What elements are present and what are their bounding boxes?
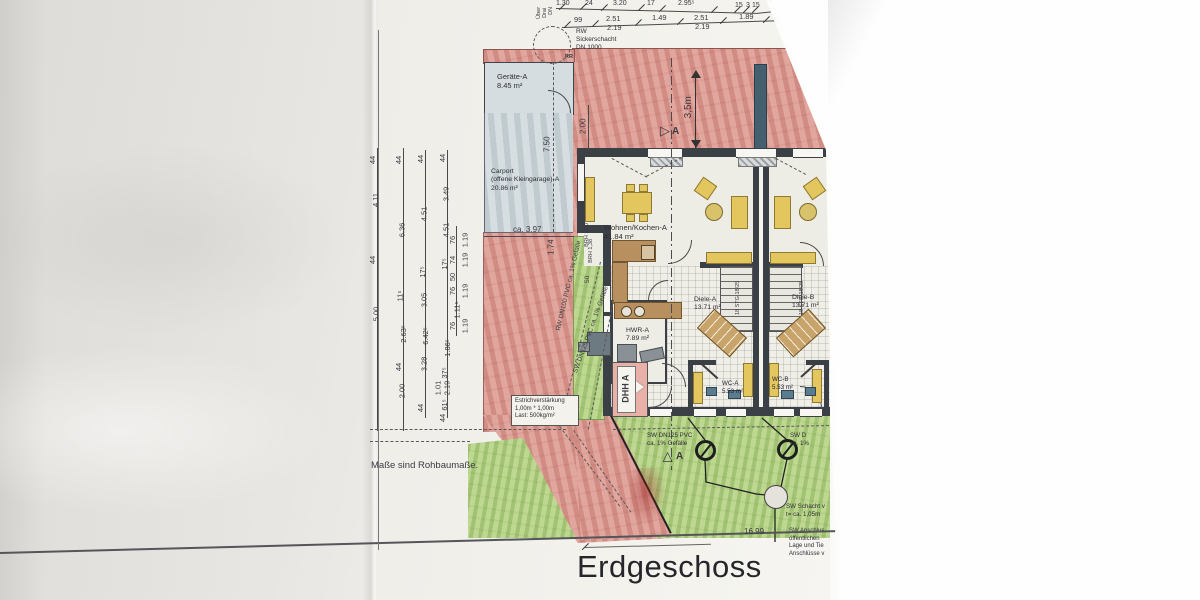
dim-ca397-line [484,236,574,237]
rohbau-note: Maße sind Rohbaumaße. [371,461,478,471]
dimension-chain-line [425,150,426,418]
dining-chair-4 [639,214,648,222]
page-title: Erdgeschoss [577,549,762,585]
dining-chair-3 [626,214,635,222]
dimension-label: 4.51 [420,207,428,222]
sw-lawn-label: SW DN125 PVC ca. 1% Gefälle [647,432,692,448]
hwr-label: HWR-A7.89 m² [626,327,649,344]
dimension-label: 61⁵ [441,399,449,410]
grenz-length-label: 16.99 [744,528,764,536]
dimension-label: 44 [395,363,403,371]
dimension-label: 2.51 [606,15,621,23]
dimension-label: 76 [449,236,457,244]
lintel-b [738,157,777,167]
dimension-label: 17⁵ [419,266,427,277]
washer [617,344,637,362]
geraete-label: Geräte-A8.45 m² [497,72,527,91]
dimension-label: 44 [395,156,403,164]
paper-left-area [0,0,380,600]
plan-frame-left [378,30,379,550]
toilet-b [805,387,816,396]
plant-table-b [799,203,817,221]
dimension-label: 1.19 [461,253,469,268]
plant-table-a [705,203,723,221]
section-line-a [671,58,672,158]
dim-35-arrow-down [691,140,701,148]
dimension-label: 37⁵ [441,367,449,378]
dimension-label: 1.01 [434,381,442,396]
boundary-dashed-1 [370,429,566,430]
dim-750-label: 7.50 [544,136,552,152]
north-window-b2 [793,148,823,158]
wc-a-label: WC-A5.53 m² [722,380,743,396]
party-wall-joint-strip [754,64,767,152]
stairs-a-label: 18 STG 18/25 [736,281,742,315]
dimension-label: 2.51 [694,14,709,22]
wc-b-east-wall [824,362,829,409]
dimension-label: 44 [369,256,377,264]
diele-a-label: Diele-A13.71 m² [694,296,721,313]
dim-35-line [695,72,696,148]
dimension-label: 2.95⁵ [678,0,695,7]
dimension-label: 74 [449,256,457,264]
party-wall-left [753,156,759,416]
top-vertical-text-3: DN [549,7,555,15]
section-marker-top-label: A [672,127,679,138]
wardrobe-a-west [693,372,703,404]
sideboard-b [770,252,816,264]
dhh-a-arrow [636,381,644,393]
floor-plan-photo: 18 STG 18/25 18 STG 18/25 Geräte-A8.45 m… [0,0,1200,600]
dimension-label: 2.19 [695,23,710,31]
dimension-label: 44 [417,155,425,163]
dimension-label: 3.05 [420,293,428,308]
dining-chair-1 [626,184,635,192]
toilet-a [706,387,717,396]
dimension-label: 11⁵ [397,290,405,301]
sickerschacht-circle [533,26,571,64]
brh-label-2: BRH 1,38 [589,239,595,263]
dim-200-label: 2.00 [580,118,588,134]
dimension-label: 99 [574,16,582,24]
dimension-label: 17 [647,0,655,7]
dimension-label: 2.63⁵ [400,325,408,343]
manhole-1 [695,440,716,461]
dimension-label: 50 [449,273,457,281]
dimension-label: 5.00 [372,307,380,322]
kitchen-counter-left [612,262,628,304]
dim-174-label: 1.74 [548,239,556,255]
dimension-label: 1.19 [461,284,469,299]
estrich-box: Estrichverstärkung 1,00m * 1,00m Last: 5… [511,395,579,426]
boundary-dashed-2 [370,441,470,442]
dimension-label: 44 [417,404,425,412]
sw-schacht-circle [764,485,788,509]
kitchen-hob [634,306,645,317]
dim-200-line [588,105,589,151]
sideboard-a [706,252,752,264]
dimension-label: 3.28 [420,357,428,372]
dhh-a-label: DHH A [621,375,630,403]
kitchen-appliance [641,245,655,260]
dim-ca397-label: ca. 3.97 [513,226,541,234]
dimension-label: 44 [439,154,447,162]
dining-chair-2 [639,184,648,192]
dimension-label: 76 [449,322,457,330]
dimension-label: 44 [369,156,377,164]
dimension-label: 1.19 [461,319,469,334]
dim-35-label: 3,5m [684,96,695,118]
dim-50-label: 50 [585,276,592,283]
dimension-label: 1.11⁵ [454,301,462,318]
sofa-b [774,196,791,229]
dimension-label: 6.36 [398,223,406,238]
sofa-a [731,196,748,229]
wc-b-label: WC-B5.53 m² [772,376,793,392]
sickerschacht-label: RW Sickerschacht DN 1000 [576,28,616,52]
wardrobe-b-east [812,369,822,403]
diele-b-label: Diele-B13.71 m² [792,294,819,311]
dimension-label: 2.00 [398,384,406,399]
section-marker-top-icon: ▷ [660,124,670,138]
paper-fold-right [828,0,898,160]
kitchen-sink [621,306,632,317]
dim-35-arrow-up [691,70,701,78]
carport-dashed-line [553,62,554,232]
dining-table [622,192,652,214]
dimension-label: 1.19 [461,233,469,248]
carport-label: Carport(offene Kleingarage)-A20.86 m² [491,168,559,193]
dimension-label: 2.19 [443,381,451,396]
north-wall [577,148,828,157]
dimension-label: 6.42⁵ [422,327,430,345]
sw-schacht-label: SW Schacht v t= ca. 1,05m [786,503,825,519]
dimension-label: 3.49 [442,187,450,202]
paper-fold-left [362,0,378,600]
dimension-label: 44 [439,414,447,422]
tall-cabinet-a [585,177,595,222]
dimension-label: 76 [449,287,457,295]
west-window-living [577,164,585,201]
wohnen-label: Wohnen/Kochen-A41.84 m² [604,223,667,242]
dimension-label: 1.86⁵ [444,339,452,357]
dimension-label: 1.89 [739,13,754,21]
dimension-label: 1.49 [652,14,667,22]
dimension-label: 3.20 [613,0,627,7]
wardrobe-a-east [743,363,753,397]
sw-lawn-label-b: SW D ca. 1% [790,432,809,448]
